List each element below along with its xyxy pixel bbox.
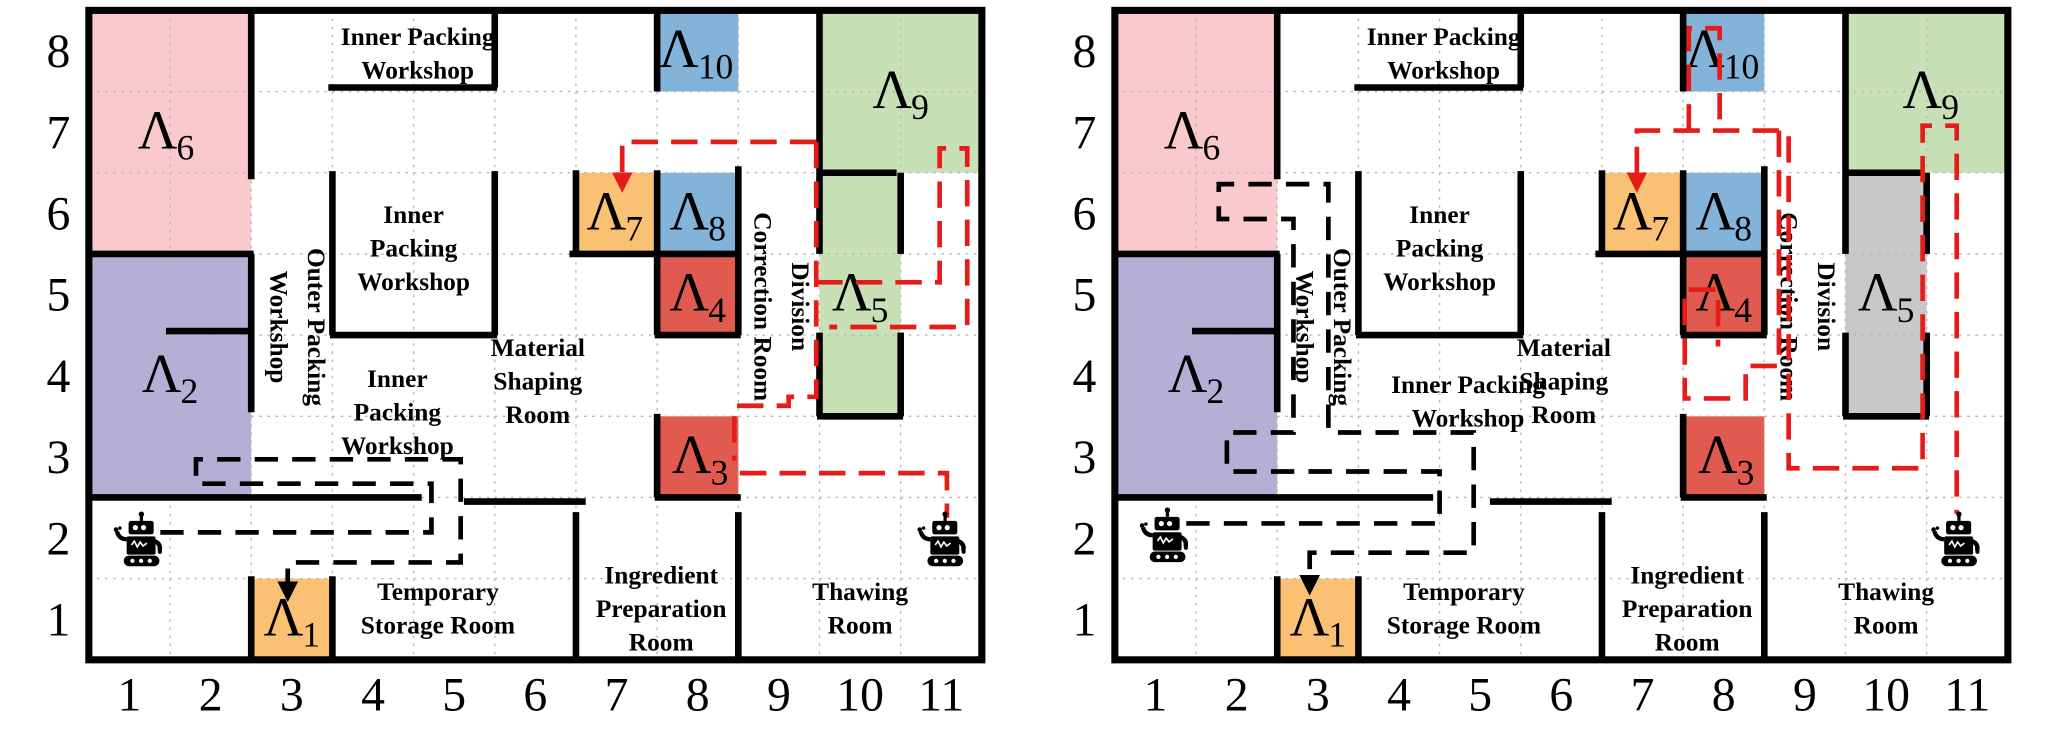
y-tick: 6 — [1072, 189, 1096, 241]
x-tick: 4 — [1387, 670, 1411, 722]
y-tick: 2 — [1072, 513, 1096, 565]
x-tick: 10 — [836, 670, 884, 722]
y-tick: 2 — [46, 513, 70, 565]
y-tick: 8 — [1072, 26, 1096, 78]
room-label-outer-packing: Outer PackingWorkshop — [265, 248, 331, 406]
robot-arm-left — [921, 532, 931, 540]
room-label-division-correction: DivisionCorrection Room — [748, 212, 814, 401]
y-tick: 7 — [46, 107, 70, 159]
room-label-material-shaping: MaterialShapingRoom — [491, 334, 585, 429]
x-tick: 8 — [686, 670, 710, 722]
y-tick: 3 — [1072, 432, 1096, 484]
room-label-thawing: ThawingRoom — [812, 578, 908, 639]
floor-plan-right: Inner PackingWorkshopInnerPackingWorksho… — [1056, 2, 2018, 723]
x-tick: 6 — [523, 670, 547, 722]
room-label-inner-packing-top: Inner PackingWorkshop — [1367, 23, 1521, 84]
x-tick: 10 — [1862, 670, 1910, 722]
room-label-thawing: ThawingRoom — [1838, 578, 1934, 639]
robot-icon — [1931, 511, 1979, 566]
y-tick: 4 — [1072, 351, 1096, 403]
x-tick: 4 — [361, 670, 385, 722]
robot2-route-d — [740, 473, 947, 518]
y-tick: 6 — [46, 189, 70, 241]
room-label-division-correction: DivisionCorrection Room — [1774, 212, 1840, 401]
x-tick: 9 — [767, 670, 791, 722]
room-label-ingredient-preparation: IngredientPreparationRoom — [596, 561, 727, 656]
room-label-inner-packing-mid: InnerPackingWorkshop — [1383, 201, 1496, 296]
x-tick: 8 — [1712, 670, 1736, 722]
x-tick: 5 — [1468, 670, 1492, 722]
room-label-inner-packing-mid: InnerPackingWorkshop — [357, 201, 470, 296]
room-label-ingredient-preparation: IngredientPreparationRoom — [1622, 561, 1753, 656]
room-label-inner-packing-top: Inner PackingWorkshop — [341, 23, 495, 84]
robot-arm-left — [117, 532, 127, 540]
x-tick: 1 — [1144, 670, 1168, 722]
x-tick: 11 — [1944, 670, 1990, 722]
x-tick: 7 — [605, 670, 629, 722]
y-tick: 5 — [1072, 270, 1096, 322]
x-tick: 6 — [1549, 670, 1573, 722]
x-tick: 9 — [1793, 670, 1817, 722]
y-tick: 1 — [46, 594, 70, 646]
room-label-temporary-storage: TemporaryStorage Room — [361, 578, 515, 639]
room-label-inner-packing-low: InnerPackingWorkshop — [341, 365, 454, 460]
y-tick: 8 — [46, 26, 70, 78]
y-tick: 4 — [46, 351, 70, 403]
x-tick: 7 — [1631, 670, 1655, 722]
y-axis: 12345678 — [1072, 26, 1096, 646]
x-axis: 1234567891011 — [118, 670, 965, 722]
x-tick: 2 — [1225, 670, 1249, 722]
y-tick: 7 — [1072, 107, 1096, 159]
x-tick: 3 — [280, 670, 304, 722]
x-tick: 11 — [918, 670, 964, 722]
figure-container: Inner PackingWorkshopInnerPackingWorksho… — [0, 0, 2048, 723]
room-label-material-shaping: MaterialShapingRoom — [1517, 334, 1611, 429]
robot-icon — [1140, 507, 1188, 562]
robot-icon — [917, 511, 965, 566]
y-tick: 1 — [1072, 594, 1096, 646]
robot-arm-left — [1143, 527, 1153, 535]
y-tick: 3 — [46, 432, 70, 484]
x-axis: 1234567891011 — [1144, 670, 1991, 722]
x-tick: 5 — [442, 670, 466, 722]
x-tick: 1 — [118, 670, 142, 722]
robot-icon — [114, 511, 162, 566]
robot-arm-left — [1935, 532, 1945, 540]
x-tick: 2 — [199, 670, 223, 722]
y-axis: 12345678 — [46, 26, 70, 646]
room-label-outer-packing: Outer PackingWorkshop — [1291, 248, 1357, 406]
floor-plan-left: Inner PackingWorkshopInnerPackingWorksho… — [30, 2, 992, 723]
room-label-temporary-storage: TemporaryStorage Room — [1387, 578, 1541, 639]
x-tick: 3 — [1306, 670, 1330, 722]
y-tick: 5 — [46, 270, 70, 322]
